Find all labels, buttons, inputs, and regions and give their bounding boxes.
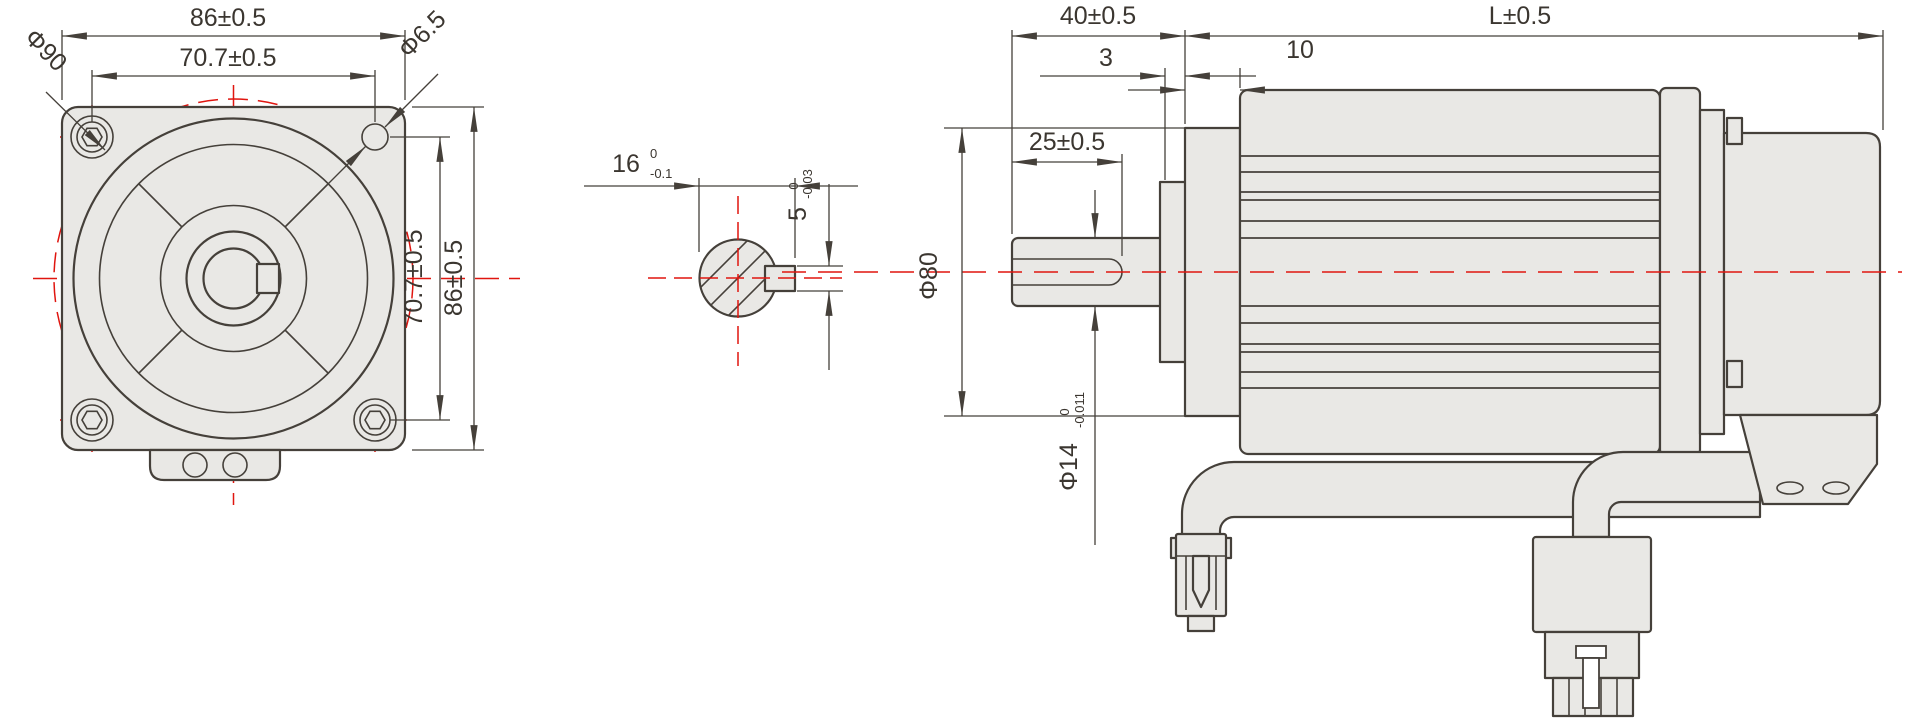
servo-motor-engineering-drawing: 86±0.5 70.7±0.5 Φ90 Φ6.5 70.7±0.5 86±0.5 — [0, 0, 1913, 719]
dim-key-width-tol-upper: 0 — [786, 182, 801, 189]
dim-flange-offset-label: 10 — [1286, 36, 1314, 64]
dim-pilot-circle-label: Φ90 — [19, 24, 73, 78]
shaft-section-view: 16 0 -0.1 5 0 -0.03 — [584, 146, 892, 370]
dim-boss-label: 3 — [1099, 44, 1113, 72]
connector-latch-stem — [1583, 658, 1599, 708]
dim-flat-tol-upper: 0 — [650, 146, 657, 161]
shaft-keyway-notch — [257, 264, 279, 293]
dim-shaft-dia-tol-lower: -0.011 — [1072, 392, 1087, 428]
front-cable-gland — [150, 450, 280, 480]
dim-flat-value: 16 — [612, 150, 640, 178]
housing-tab-bottom — [1727, 361, 1742, 387]
dim-body-length-label: L±0.5 — [1489, 2, 1551, 30]
front-view: 86±0.5 70.7±0.5 Φ90 Φ6.5 70.7±0.5 86±0.5 — [19, 4, 520, 505]
dim-shaft-dia-value: Φ14 — [1055, 443, 1083, 491]
housing-tab-top — [1727, 118, 1742, 144]
dim-hole-spacing-right-label: 70.7±0.5 — [400, 229, 428, 326]
power-cable — [1573, 452, 1760, 537]
dim-key-width-tol-lower: -0.03 — [800, 169, 815, 199]
dim-shaft-dia-tol-upper: 0 — [1057, 408, 1072, 415]
dim-height-right-label: 86±0.5 — [440, 240, 468, 316]
dim-shaft-length-label: 40±0.5 — [1060, 2, 1136, 30]
connector-latch-bar — [1576, 646, 1606, 658]
dim-hole-spacing-top-label: 70.7±0.5 — [179, 44, 276, 72]
dim-flange-dia-label: Φ80 — [915, 252, 943, 300]
drawing-canvas: 86±0.5 70.7±0.5 Φ90 Φ6.5 70.7±0.5 86±0.5 — [0, 0, 1913, 719]
side-view: 40±0.5 L±0.5 3 10 25±0.5 Φ80 Φ14 0 -0.01… — [782, 2, 1902, 716]
rear-housing — [1724, 133, 1880, 415]
connector-bracket — [1740, 415, 1877, 504]
dim-keyway-length-label: 25±0.5 — [1029, 128, 1105, 156]
dim-hole-dia-label: Φ6.5 — [393, 5, 451, 63]
power-connector — [1533, 537, 1651, 716]
encoder-connector — [1171, 534, 1231, 631]
section-hatching — [590, 180, 892, 370]
dim-width-top-label: 86±0.5 — [190, 4, 266, 32]
dim-flat-tol-lower: -0.1 — [650, 166, 672, 181]
dim-key-width-value: 5 — [784, 207, 812, 221]
